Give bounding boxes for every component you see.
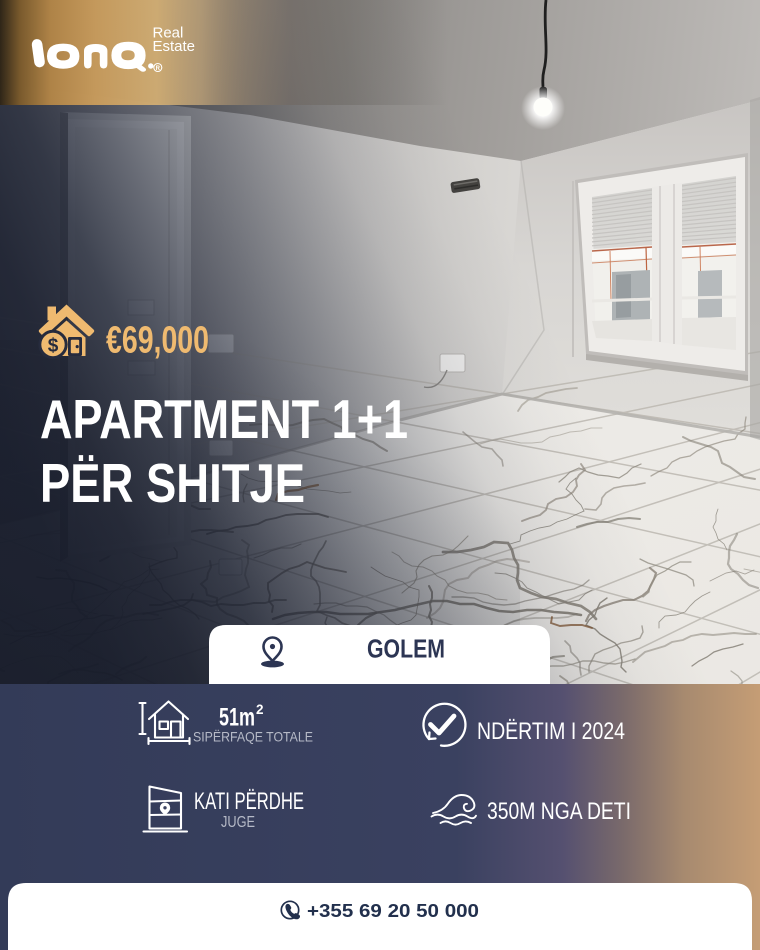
svg-text:NDËRTIM I 2024: NDËRTIM I 2024 (477, 718, 625, 745)
svg-text:KATI PËRDHE: KATI PËRDHE (194, 788, 304, 815)
svg-text:2: 2 (256, 702, 264, 717)
svg-text:SIPËRFAQE TOTALE: SIPËRFAQE TOTALE (193, 730, 313, 745)
svg-text:GOLEM: GOLEM (367, 636, 445, 664)
svg-text:51m: 51m (219, 704, 255, 732)
svg-text:$: $ (48, 336, 59, 357)
svg-text:€69,000: €69,000 (106, 320, 209, 362)
svg-text:R: R (156, 66, 161, 72)
svg-text:350M NGA DETI: 350M NGA DETI (487, 798, 631, 825)
svg-text:Estate: Estate (153, 38, 196, 55)
svg-text:APARTMENT 1+1: APARTMENT 1+1 (40, 388, 408, 450)
svg-text:JUGE: JUGE (221, 814, 255, 831)
svg-text:+355 69 20 50 000: +355 69 20 50 000 (307, 900, 479, 921)
svg-text:PËR SHITJE: PËR SHITJE (40, 452, 305, 514)
